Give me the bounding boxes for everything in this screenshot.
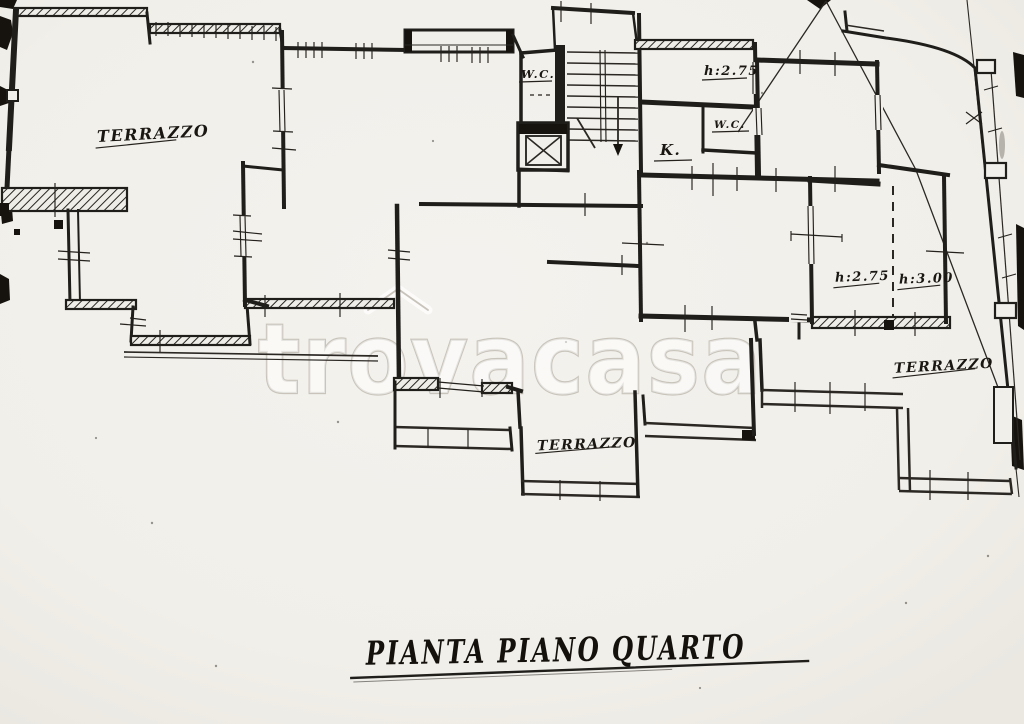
label-stair-wc: W.C. [519,67,555,82]
elevator-shaft [518,123,568,170]
small-wc-text: W.C. [714,119,746,131]
right-height-a-text: h:2.75 [835,269,890,286]
top-room-height-text: h:2.75 [704,64,759,79]
right-height-b-text: h:3.00 [899,271,954,288]
label-small-wc: W.C. [712,119,749,132]
scanned-floor-plan-page: trovacasa [0,0,1024,724]
stair-wc-text: W.C. [521,67,555,81]
kitchen-text: K. [659,141,681,159]
label-top-room-height: h:2.75 [702,64,759,80]
floor-plan-canvas: trovacasa [0,0,1024,724]
watermark-text: trovacasa [258,303,763,416]
